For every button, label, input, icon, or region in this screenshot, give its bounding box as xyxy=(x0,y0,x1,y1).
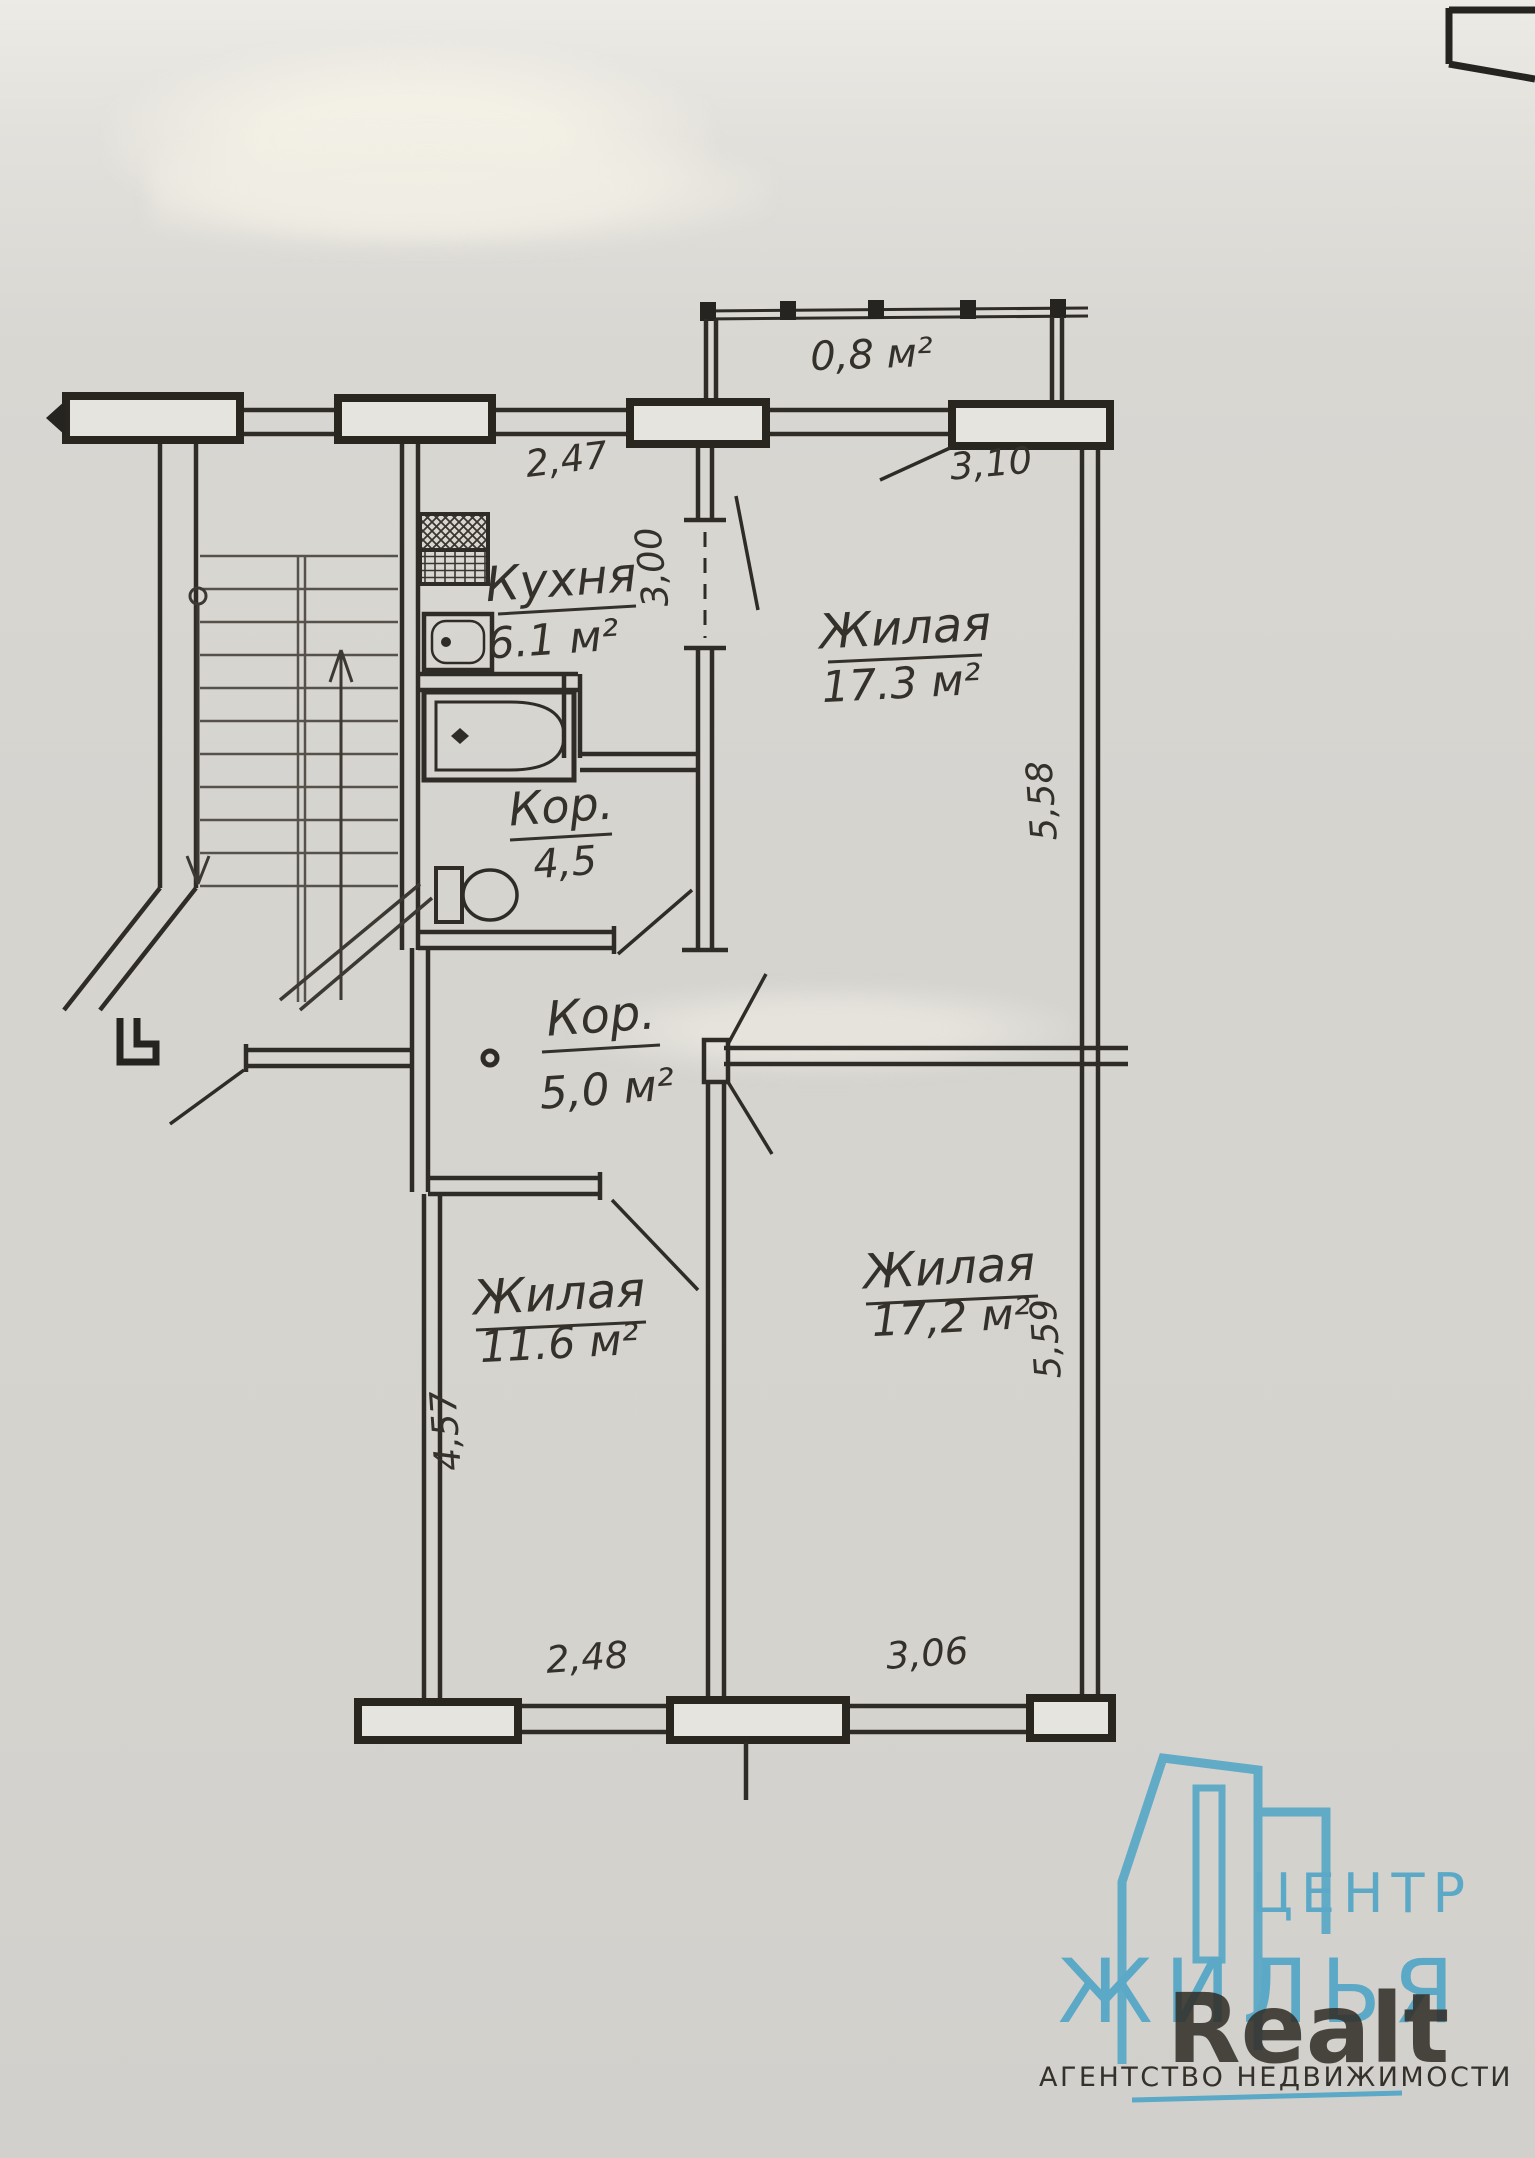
staircase xyxy=(120,556,432,1062)
agency-logo: ЦЕНТР ЖИЛЬЯ Realt АГЕНТСТВО НЕДВИЖИМОСТИ xyxy=(1039,1758,1513,2100)
wall-pier-bottom-middle xyxy=(670,1700,846,1740)
corridor-area: 5,0 м² xyxy=(538,1059,676,1119)
room-bottom-right-label-group: Жилая 17,2 м² xyxy=(859,1236,1038,1348)
window-balcony-door xyxy=(952,404,1110,446)
bath-area: 4,5 xyxy=(532,838,599,888)
toilet-icon xyxy=(436,868,517,922)
balcony: 0,8 м² xyxy=(700,299,1088,410)
room-top-label-group: Жилая 17.3 м² xyxy=(815,596,993,714)
bathtub-icon xyxy=(424,692,574,780)
dim-top-room: 3,10 xyxy=(948,439,1034,489)
dim-bottom-right-width: 3,06 xyxy=(885,1629,970,1678)
dim-top-kitchen: 2,47 xyxy=(523,433,610,486)
dim-room-top-depth: 5,58 xyxy=(1019,759,1065,842)
kitchen-name: Кухня xyxy=(484,547,639,613)
corridor-door-pivot-dot xyxy=(483,1051,497,1065)
room-bottom-left-label-group: Жилая 11.6 м² xyxy=(469,1262,647,1374)
room-bottom-right-door-swing-a xyxy=(728,974,766,1044)
kitchen-area: 6.1 м² xyxy=(486,611,621,670)
window-kitchen-left xyxy=(338,398,492,440)
bathroom-door-swing xyxy=(618,890,692,954)
bath-label-group: Кор. 4,5 xyxy=(507,775,615,888)
kitchen-door-swing xyxy=(736,496,758,610)
room-bottom-right-door-swing-b xyxy=(728,1082,772,1154)
dim-room-bottom-left-depth: 4,57 xyxy=(423,1389,469,1472)
logo-subtitle: АГЕНТСТВО НЕДВИЖИМОСТИ xyxy=(1039,2062,1513,2093)
window-bottom-right xyxy=(1030,1698,1112,1738)
corridor-label-group: Кор. 5,0 м² xyxy=(538,984,676,1119)
balcony-door-swing xyxy=(880,448,950,480)
window-stairwell xyxy=(66,396,240,440)
logo-line1: ЦЕНТР xyxy=(1251,1862,1473,1925)
bath-name: Кор. xyxy=(507,775,615,836)
room-bottom-left-area: 11.6 м² xyxy=(479,1315,640,1373)
scanned-floor-plan-page: 0,8 м² xyxy=(0,0,1535,2158)
entrance-door-swing xyxy=(170,1070,244,1124)
wall-end-arrow xyxy=(46,400,66,436)
room-top-area: 17.3 м² xyxy=(821,655,982,713)
document-frame-corner xyxy=(1449,8,1535,79)
window-bottom-left xyxy=(358,1702,518,1740)
dim-bottom-left-width: 2,48 xyxy=(545,1633,630,1682)
stove-icon xyxy=(420,514,488,550)
balcony-area-label: 0,8 м² xyxy=(810,330,934,380)
room-labels: Кухня 6.1 м² Жилая 17.3 м² Кор. 4,5 Кор.… xyxy=(469,547,1038,1373)
logo-underline xyxy=(1132,2093,1402,2100)
room-bottom-right-area: 17,2 м² xyxy=(871,1289,1032,1347)
sink-icon xyxy=(424,614,492,670)
kitchen-label-group: Кухня 6.1 м² xyxy=(484,547,639,670)
window-kitchen-right xyxy=(630,402,766,444)
room-top-name: Жилая xyxy=(815,596,993,661)
corridor-name: Кор. xyxy=(544,984,657,1047)
entrance-threshold-symbol xyxy=(120,1018,156,1062)
stove-icon-lower xyxy=(420,550,488,584)
floor-plan-drawing: 0,8 м² xyxy=(0,0,1535,2158)
